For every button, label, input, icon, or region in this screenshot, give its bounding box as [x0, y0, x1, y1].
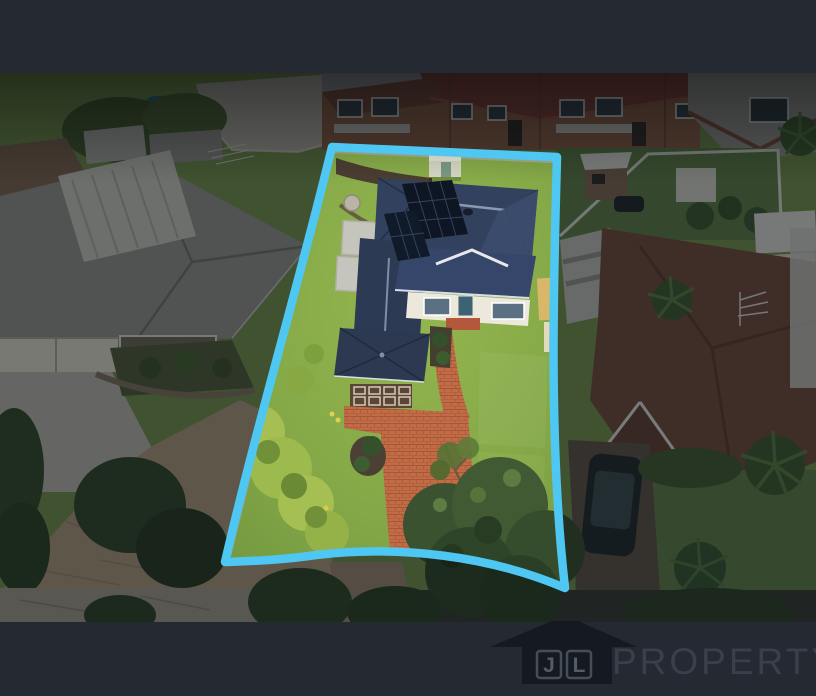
front-door	[458, 296, 473, 316]
logo-initial-l: L	[573, 654, 586, 677]
rooftop-bird	[463, 209, 473, 216]
top-letterbox-bar	[0, 0, 816, 73]
logo-wordmark: PROPERTY	[612, 641, 816, 682]
real-estate-aerial-image: J L PROPERTY	[0, 0, 816, 696]
aerial-photo	[0, 73, 816, 638]
logo-initial-j: J	[543, 654, 555, 677]
paver-circle	[344, 195, 360, 211]
top-shade	[0, 73, 816, 183]
screenshot-root: J L PROPERTY	[0, 0, 816, 696]
